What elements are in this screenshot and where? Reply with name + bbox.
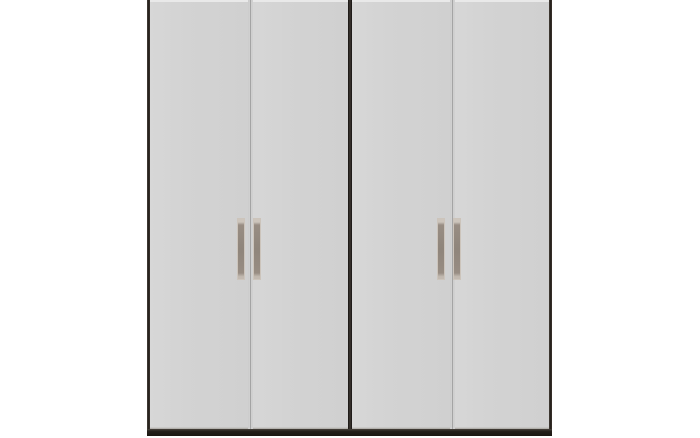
wardrobe-door-1 [150,0,250,429]
wardrobe-door-2 [251,0,348,429]
left-side-panel [147,0,150,436]
center-divider-panel [348,0,352,436]
door-3-handle [437,218,445,280]
right-side-panel [549,0,552,436]
product-photo-stage [0,0,700,438]
door-1-handle [237,218,245,280]
door-gap-left-unit [248,0,253,429]
wardrobe-door-3 [352,0,452,429]
door-4-handle [453,218,461,280]
base-plinth [147,429,552,436]
wardrobe [147,0,552,436]
door-2-handle [253,218,261,280]
wardrobe-door-4 [453,0,549,429]
door-gap-right-unit [450,0,455,429]
